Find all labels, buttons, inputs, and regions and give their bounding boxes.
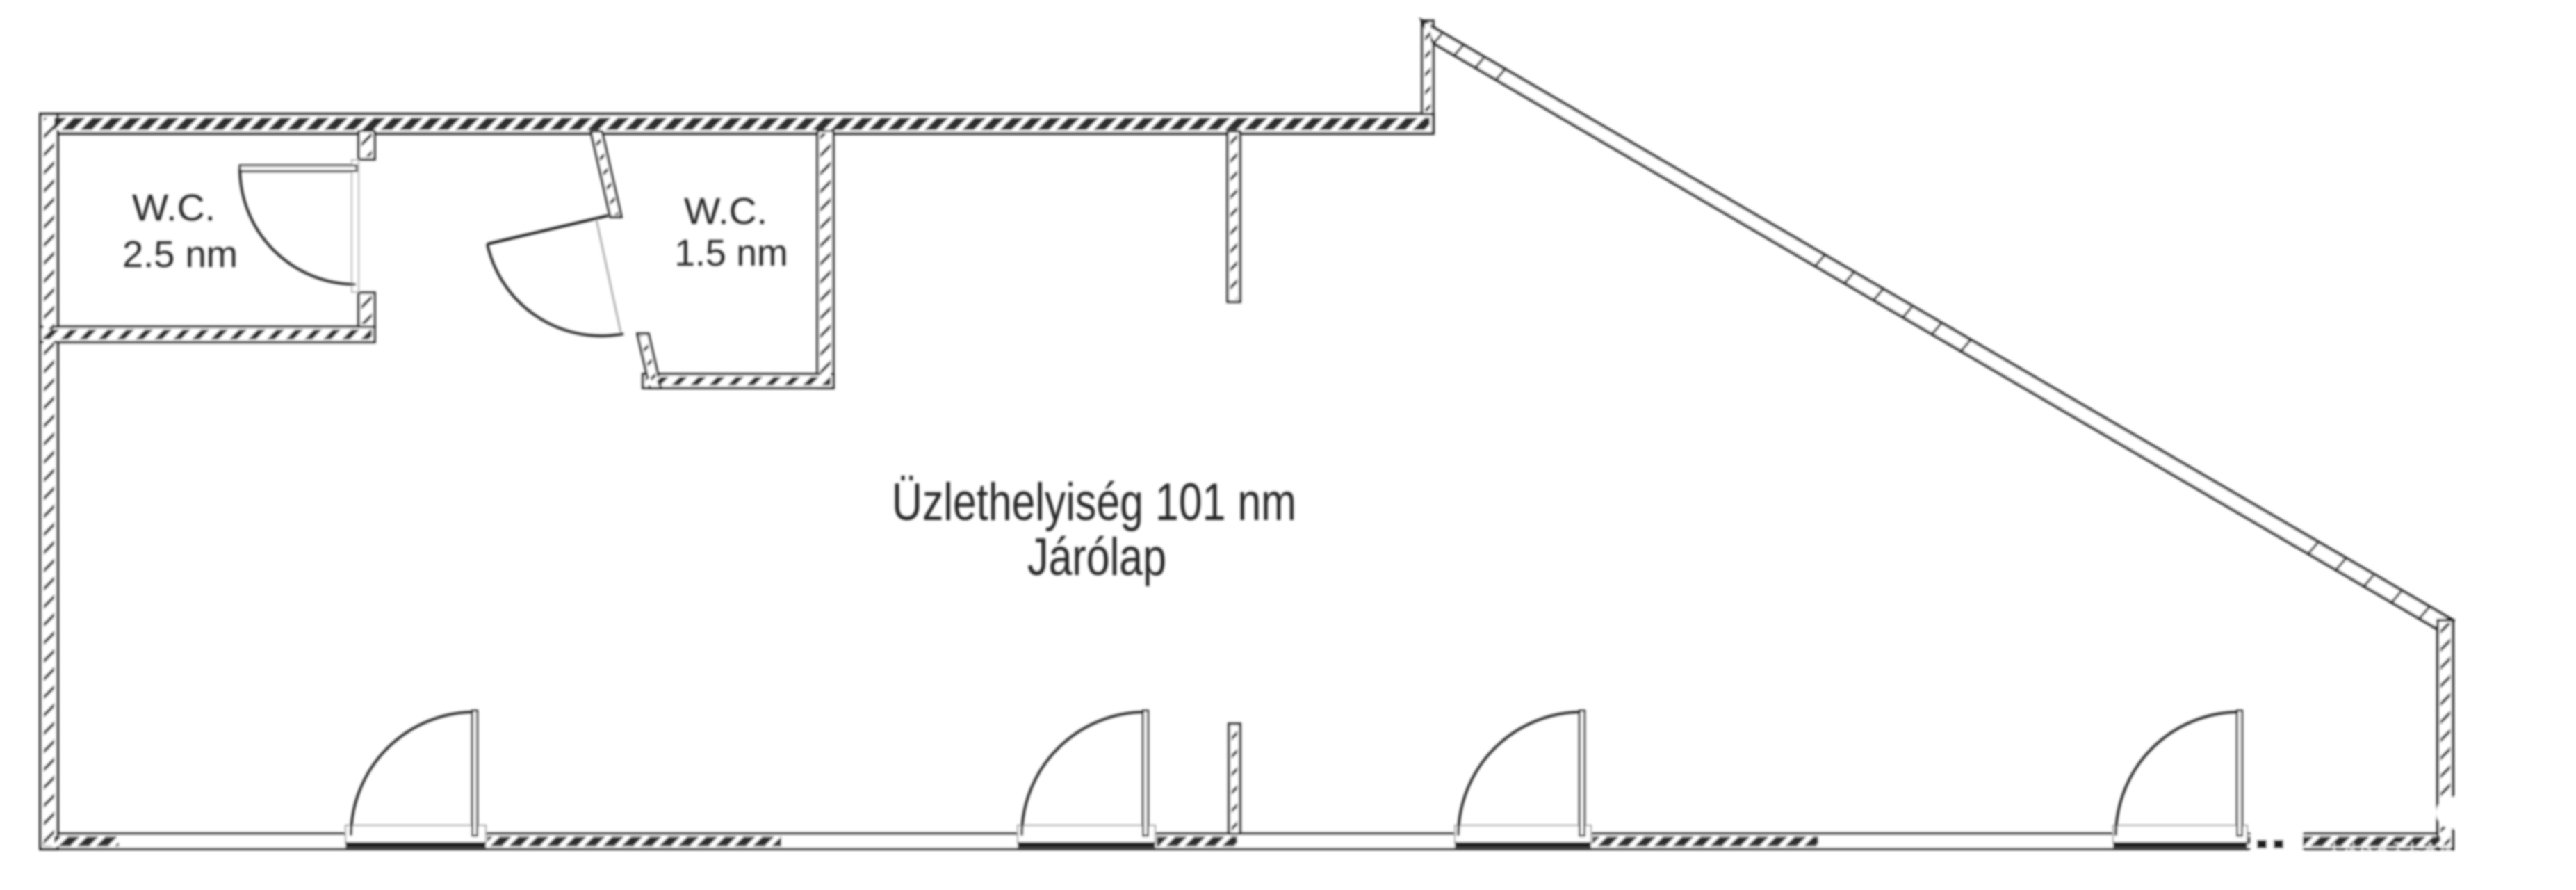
svg-text:G: G	[2361, 841, 2372, 856]
svg-text:1.5 nm: 1.5 nm	[675, 232, 788, 274]
svg-text:L: L	[2410, 841, 2418, 856]
svg-text:Járólap: Járólap	[1027, 528, 1166, 587]
svg-text:W.C.: W.C.	[132, 187, 215, 229]
svg-text:N: N	[2441, 841, 2451, 856]
svg-text:2.5 nm: 2.5 nm	[122, 234, 238, 275]
svg-text:N: N	[2345, 841, 2355, 856]
svg-text:T: T	[2394, 841, 2402, 856]
svg-text:A: A	[2425, 841, 2435, 856]
svg-text:Üzlethelyiség 101 nm: Üzlethelyiség 101 nm	[892, 473, 1296, 532]
svg-text:W.C.: W.C.	[684, 191, 767, 232]
svg-text:I: I	[2332, 841, 2336, 856]
svg-text:A: A	[2377, 841, 2387, 856]
